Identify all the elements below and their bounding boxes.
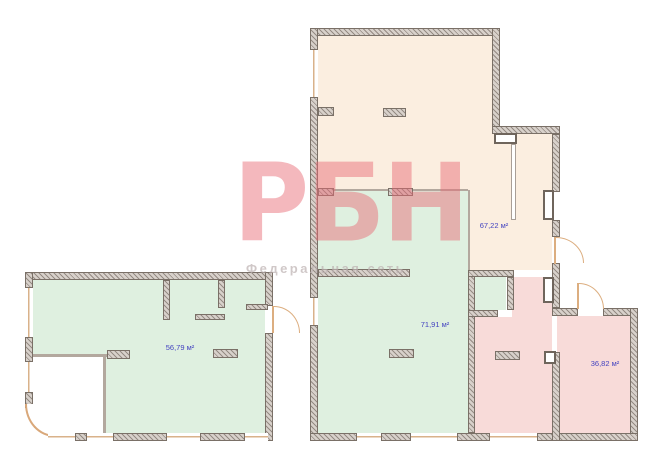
partition-wall [163,280,170,320]
wall-stub [107,350,130,359]
watermark-logo: РБН [233,149,467,257]
wall-segment [552,308,578,316]
wall-segment [381,433,411,441]
wall-segment [457,433,490,441]
wall-segment [630,308,638,441]
partition-wall [246,304,268,310]
wall-segment [468,310,498,317]
window-box [494,133,517,144]
wall-segment [200,433,245,441]
window-opening [310,298,318,325]
wall-segment [552,352,560,441]
wall-segment [310,433,357,441]
window-box [543,277,554,303]
wall-segment [25,272,33,288]
radiator [383,108,406,117]
shaft-box [544,351,556,364]
window-opening [310,50,318,97]
partition-line [33,354,107,357]
door-arc [556,237,584,263]
wall-segment [25,272,273,280]
window-opening [25,362,33,392]
wall-segment [507,277,514,310]
wall-segment [113,433,167,441]
wall-segment [310,28,318,50]
window-opening [25,288,33,337]
wall-stub [318,107,334,116]
window-opening [167,433,200,441]
radiator [495,351,520,360]
window-opening [87,433,113,441]
wall-segment [310,28,500,36]
wall-segment [25,337,33,362]
room-area-label: 67,22 м² [462,221,526,230]
watermark-subtitle: Федеральная сеть [246,261,406,276]
wall-segment [468,270,514,277]
wall-segment [265,272,273,306]
glass-partition [511,144,516,220]
window-opening [48,433,75,441]
window-opening [411,433,457,441]
partition-wall [218,280,225,308]
wall-segment [75,433,87,441]
wall-segment [265,333,273,441]
room-fill-small-green [474,277,506,310]
window-opening [357,433,381,441]
door-arc [274,306,300,333]
wall-segment [552,220,560,237]
radiator [389,349,414,358]
room-fill-pink [557,316,632,433]
open-plan-boundary [468,190,470,270]
wall-segment [492,28,500,134]
radiator [213,349,238,358]
window-box [543,190,554,220]
window-opening [490,433,537,441]
room-fill-corridor [474,317,552,433]
door-arc [579,283,604,309]
room-area-label: 36,82 м² [573,359,637,368]
wall-segment [310,325,318,441]
room-area-label: 56,79 м² [148,343,212,352]
wall-segment [552,134,560,192]
partition-line [103,357,106,433]
floorplan-canvas: 56,79 м² 67,22 м² [0,0,660,465]
wall-segment [468,270,475,433]
room-area-label: 71,91 м² [403,320,467,329]
window-opening [245,433,268,441]
partition-wall [195,314,225,320]
